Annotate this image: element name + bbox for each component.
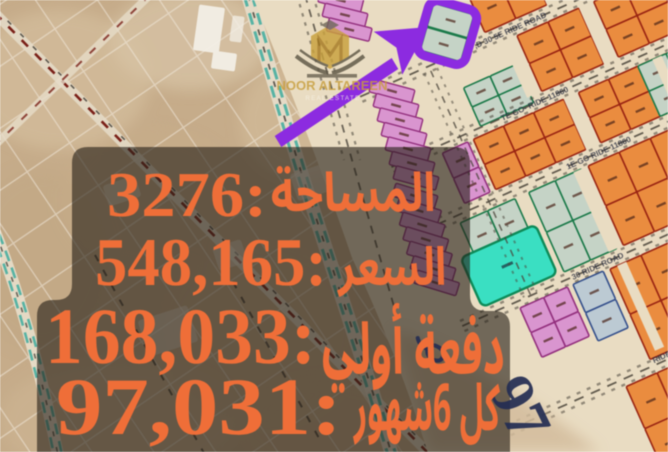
svg-text:NOOR ALTAREEN: NOOR ALTAREEN xyxy=(277,78,388,93)
svg-text:REAL ESTATE: REAL ESTATE xyxy=(306,96,361,102)
